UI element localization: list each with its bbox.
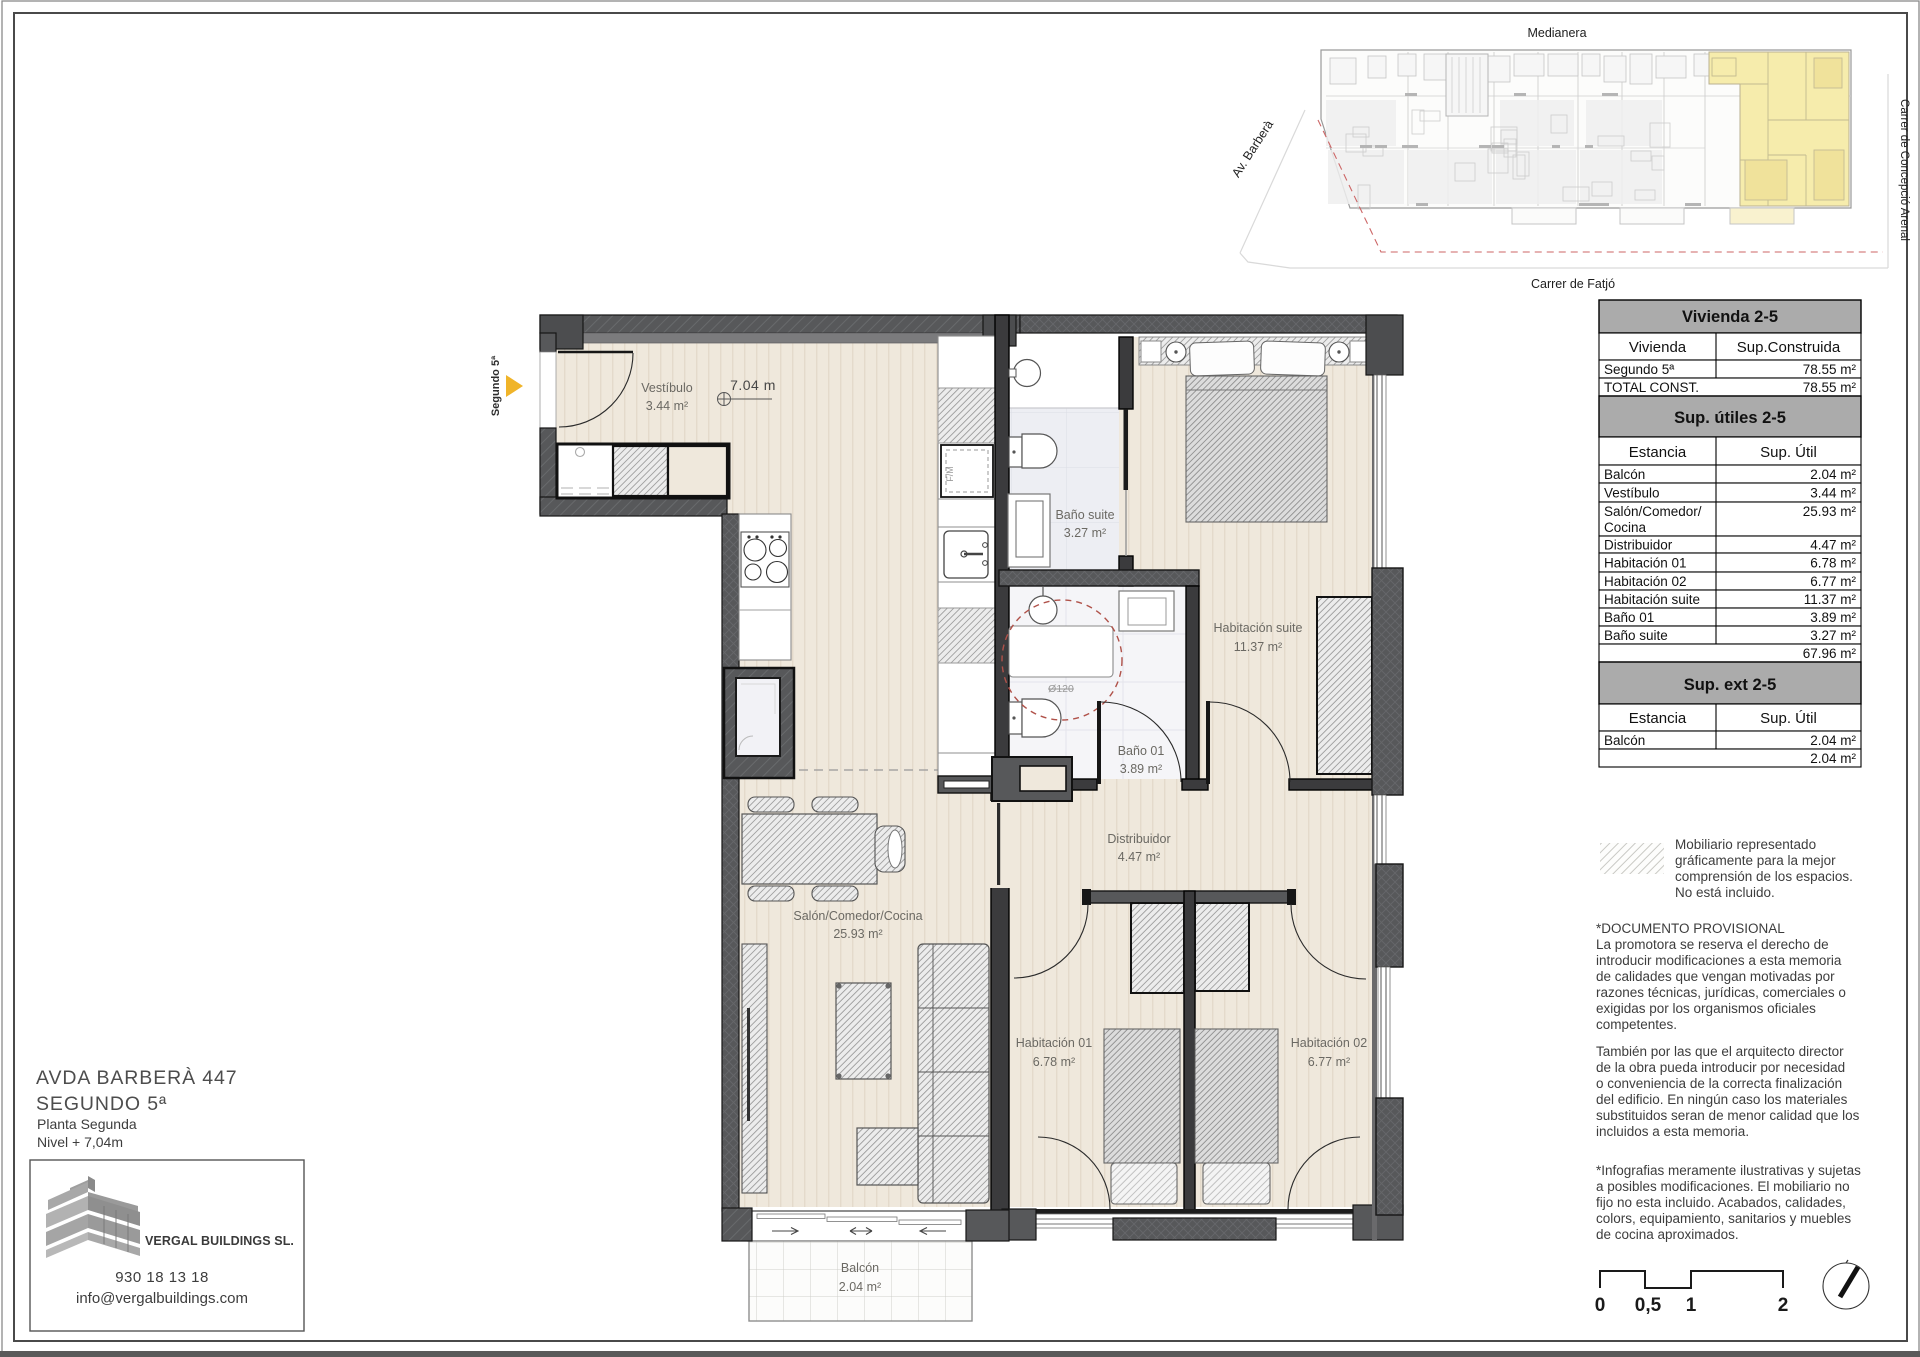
- svg-text:2.04 m²: 2.04 m²: [1810, 733, 1856, 748]
- svg-text:Ø120: Ø120: [1048, 683, 1074, 695]
- svg-text:SEGUNDO 5ª: SEGUNDO 5ª: [36, 1093, 167, 1115]
- svg-text:3.89 m²: 3.89 m²: [1810, 610, 1856, 625]
- svg-text:incluidos a esta memoria.: incluidos a esta memoria.: [1596, 1124, 1749, 1139]
- svg-text:*Infografias meramente ilustra: *Infografias meramente ilustrativas y su…: [1596, 1163, 1861, 1178]
- svg-text:F/M: F/M: [945, 466, 955, 482]
- svg-text:7.04 m: 7.04 m: [730, 377, 776, 393]
- svg-text:Salón/Comedor/Cocina: Salón/Comedor/Cocina: [793, 909, 922, 923]
- svg-text:Carrer de Fatjó: Carrer de Fatjó: [1531, 277, 1615, 291]
- svg-text:Planta Segunda: Planta Segunda: [37, 1116, 137, 1132]
- svg-text:No está incluido.: No está incluido.: [1675, 885, 1775, 900]
- svg-text:3.27 m²: 3.27 m²: [1810, 628, 1856, 643]
- svg-text:Balcón: Balcón: [1604, 733, 1645, 748]
- svg-text:substituidos seran de menor ca: substituidos seran de menor calidad que …: [1596, 1108, 1860, 1123]
- svg-text:Sup. útiles 2-5: Sup. útiles 2-5: [1674, 409, 1786, 427]
- svg-text:Sup. Útil: Sup. Útil: [1760, 710, 1817, 727]
- svg-text:Habitación suite: Habitación suite: [1214, 621, 1303, 635]
- svg-text:Baño 01: Baño 01: [1118, 744, 1165, 758]
- svg-text:3.44 m²: 3.44 m²: [1810, 485, 1856, 500]
- svg-text:11.37 m²: 11.37 m²: [1234, 640, 1282, 654]
- svg-text:Medianera: Medianera: [1527, 26, 1586, 40]
- svg-text:Balcón: Balcón: [1604, 467, 1645, 482]
- svg-text:2.04 m²: 2.04 m²: [1810, 751, 1856, 766]
- svg-text:0: 0: [1595, 1295, 1606, 1316]
- svg-text:Balcón: Balcón: [841, 1261, 879, 1275]
- svg-text:78.55 m²: 78.55 m²: [1803, 380, 1857, 395]
- svg-text:exigidas por los organismos o: exigidas por los organismos oficiales: [1596, 1001, 1816, 1016]
- svg-text:6.78 m²: 6.78 m²: [1810, 555, 1856, 570]
- svg-text:Vivienda: Vivienda: [1629, 339, 1687, 356]
- svg-text:VERGAL BUILDINGS SL.: VERGAL BUILDINGS SL.: [145, 1234, 294, 1248]
- svg-text:Baño suite: Baño suite: [1604, 628, 1668, 643]
- svg-text:3.44 m²: 3.44 m²: [646, 399, 688, 413]
- svg-text:TOTAL CONST.: TOTAL CONST.: [1604, 380, 1699, 395]
- svg-text:gráficamente para la mejor: gráficamente para la mejor: [1675, 853, 1836, 868]
- svg-text:fijo no esta incluido. Acabado: fijo no esta incluido. Acabados, calidad…: [1596, 1195, 1846, 1210]
- svg-text:11.37 m²: 11.37 m²: [1804, 592, 1857, 607]
- svg-text:*DOCUMENTO PROVISIONAL: *DOCUMENTO PROVISIONAL: [1596, 921, 1785, 936]
- svg-text:4.47 m²: 4.47 m²: [1118, 850, 1160, 864]
- svg-text:Carrer de Concepció Arenal: Carrer de Concepció Arenal: [1898, 99, 1910, 241]
- svg-text:Estancia: Estancia: [1629, 710, 1687, 727]
- svg-text:de cocina aproximados.: de cocina aproximados.: [1596, 1227, 1739, 1242]
- svg-text:3.27 m²: 3.27 m²: [1064, 526, 1106, 540]
- svg-text:de la obra pueda introducir po: de la obra pueda introducir por necesida…: [1596, 1060, 1845, 1075]
- svg-text:Habitación 01: Habitación 01: [1604, 555, 1687, 570]
- svg-text:colors, equipamiento, sanitari: colors, equipamiento, sanitarios y muebl…: [1596, 1211, 1851, 1226]
- svg-text:6.77 m²: 6.77 m²: [1308, 1055, 1350, 1069]
- svg-text:Av. Barberà: Av. Barberà: [1229, 118, 1276, 180]
- svg-text:de calidades que vengan motiva: de calidades que vengan motivadas por: [1596, 969, 1835, 984]
- svg-text:o conveniencia de la correcta: o conveniencia de la correcta finalizaci…: [1596, 1076, 1842, 1091]
- svg-text:Segundo 5ª: Segundo 5ª: [490, 355, 502, 416]
- svg-text:Habitación 02: Habitación 02: [1604, 574, 1687, 589]
- svg-text:Distribuidor: Distribuidor: [1107, 832, 1170, 846]
- svg-text:Habitación suite: Habitación suite: [1604, 592, 1700, 607]
- svg-text:67.96 m²: 67.96 m²: [1803, 646, 1857, 661]
- svg-text:2.04 m²: 2.04 m²: [1810, 467, 1856, 482]
- svg-text:25.93 m²: 25.93 m²: [833, 927, 882, 941]
- svg-text:introducir modificaciones a es: introducir modificaciones a esta memoria: [1596, 953, 1842, 968]
- svg-text:6.77 m²: 6.77 m²: [1810, 574, 1856, 589]
- svg-text:También por las que el arquite: También por las que el arquitecto direct…: [1596, 1044, 1844, 1059]
- svg-text:razones técnicas, jurídicas, c: razones técnicas, jurídicas, comerciales…: [1596, 985, 1846, 1000]
- svg-text:0,5: 0,5: [1635, 1295, 1662, 1316]
- svg-text:3.89 m²: 3.89 m²: [1120, 762, 1162, 776]
- svg-text:2.04 m²: 2.04 m²: [839, 1280, 881, 1294]
- svg-text:Mobiliario representado: Mobiliario representado: [1675, 837, 1816, 852]
- svg-text:2: 2: [1778, 1295, 1789, 1316]
- svg-text:comprensión de los espacios.: comprensión de los espacios.: [1675, 869, 1853, 884]
- svg-text:info@vergalbuildings.com: info@vergalbuildings.com: [76, 1290, 248, 1307]
- svg-text:Sup.Construida: Sup.Construida: [1737, 339, 1841, 356]
- svg-text:a posibles modificaciones. El: a posibles modificaciones. El mobiliario…: [1596, 1179, 1850, 1194]
- svg-text:4.47 m²: 4.47 m²: [1810, 537, 1856, 552]
- svg-text:La promotora se reserva el der: La promotora se reserva el derecho de: [1596, 937, 1829, 952]
- svg-text:Vivienda 2-5: Vivienda 2-5: [1682, 308, 1778, 326]
- svg-text:Segundo 5ª: Segundo 5ª: [1604, 362, 1675, 377]
- svg-text:6.78 m²: 6.78 m²: [1033, 1055, 1075, 1069]
- svg-text:Sup. Útil: Sup. Útil: [1760, 444, 1817, 461]
- svg-text:Nivel + 7,04m: Nivel + 7,04m: [37, 1134, 123, 1150]
- svg-text:78.55 m²: 78.55 m²: [1803, 362, 1857, 377]
- svg-text:competentes.: competentes.: [1596, 1017, 1677, 1032]
- svg-text:930 18 13 18: 930 18 13 18: [115, 1269, 209, 1286]
- svg-text:Baño suite: Baño suite: [1055, 508, 1114, 522]
- svg-text:Habitación 01: Habitación 01: [1016, 1036, 1092, 1050]
- svg-text:del edificio. En ningún caso l: del edificio. En ningún caso los materia…: [1596, 1092, 1848, 1107]
- svg-text:Habitación 02: Habitación 02: [1291, 1036, 1367, 1050]
- svg-text:Baño 01: Baño 01: [1604, 610, 1654, 625]
- svg-text:1: 1: [1686, 1295, 1697, 1316]
- svg-text:Sup. ext 2-5: Sup. ext 2-5: [1684, 676, 1777, 694]
- svg-text:Distribuidor: Distribuidor: [1604, 537, 1673, 552]
- svg-text:Vestíbulo: Vestíbulo: [1604, 485, 1660, 500]
- svg-text:25.93 m²: 25.93 m²: [1803, 504, 1857, 519]
- svg-text:Cocina: Cocina: [1604, 520, 1647, 535]
- svg-text:AVDA BARBERÀ 447: AVDA BARBERÀ 447: [36, 1066, 238, 1089]
- svg-text:Vestíbulo: Vestíbulo: [641, 381, 692, 395]
- svg-text:Salón/Comedor/: Salón/Comedor/: [1604, 504, 1702, 519]
- svg-text:Estancia: Estancia: [1629, 444, 1687, 461]
